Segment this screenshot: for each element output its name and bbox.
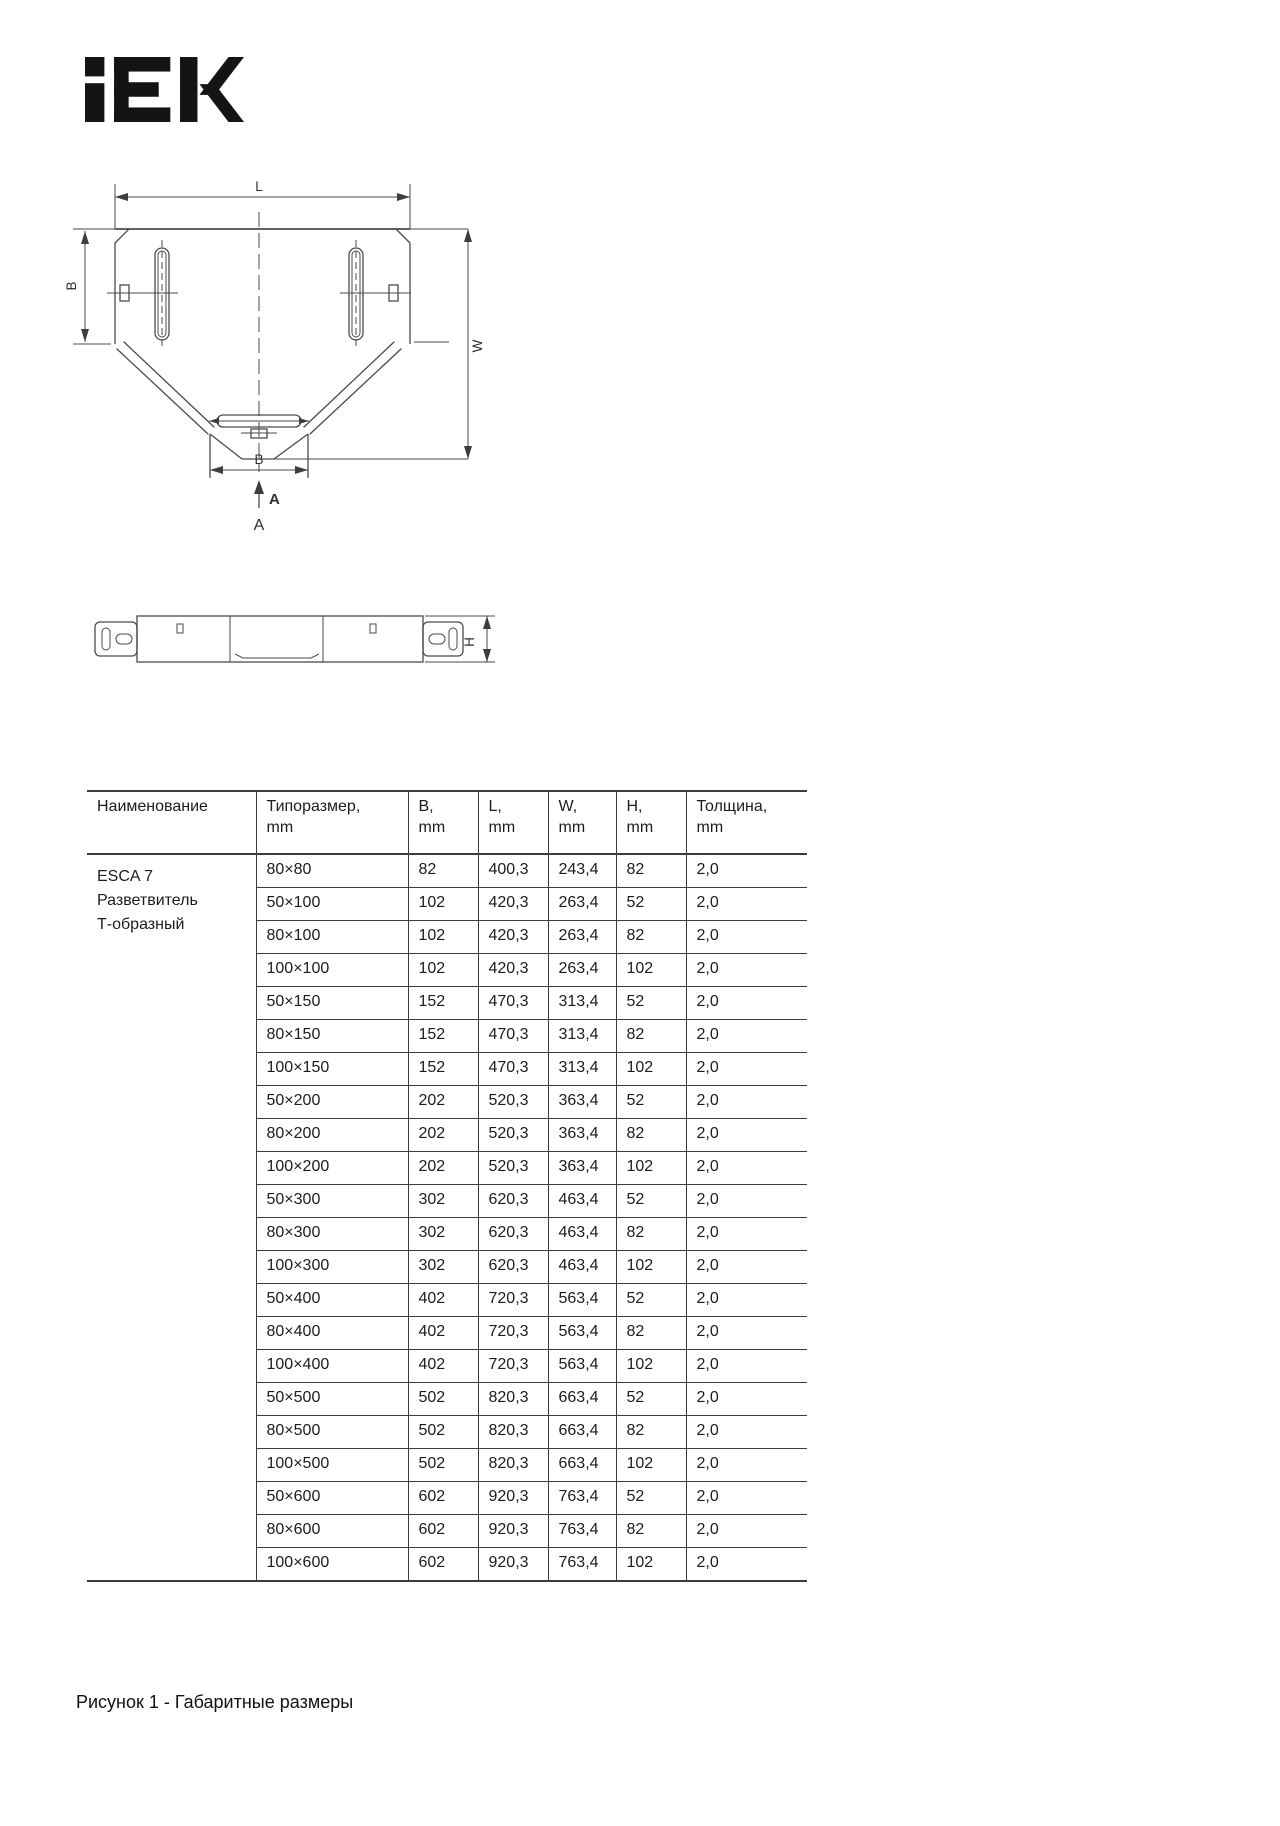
part-slope xyxy=(310,349,401,434)
table-cell: 2,0 xyxy=(686,1218,807,1251)
table-header: Наименование Типоразмер, mm B, mm L, mm … xyxy=(87,791,807,854)
header-typesize: Типоразмер, mm xyxy=(256,791,408,854)
side-body xyxy=(137,616,423,662)
part-bottom-chamfer xyxy=(210,434,242,459)
table-cell: 52 xyxy=(616,1185,686,1218)
table-cell: 50×150 xyxy=(256,987,408,1020)
dim-arrow xyxy=(483,616,491,629)
side-slot xyxy=(116,634,132,644)
table-cell: 2,0 xyxy=(686,1053,807,1086)
table-cell: 763,4 xyxy=(548,1482,616,1515)
table-cell: 563,4 xyxy=(548,1317,616,1350)
table-cell: 2,0 xyxy=(686,1383,807,1416)
part-bottom-chamfer xyxy=(274,434,308,459)
table-cell: 2,0 xyxy=(686,1350,807,1383)
table-cell: 100×500 xyxy=(256,1449,408,1482)
table-cell: 2,0 xyxy=(686,1119,807,1152)
table-cell: 563,4 xyxy=(548,1284,616,1317)
table-cell: 400,3 xyxy=(478,854,548,888)
table-cell: 663,4 xyxy=(548,1416,616,1449)
table-cell: 102 xyxy=(408,954,478,987)
table-cell: 102 xyxy=(616,954,686,987)
table-cell: 202 xyxy=(408,1119,478,1152)
part-slope xyxy=(124,342,214,427)
table-cell: 80×300 xyxy=(256,1218,408,1251)
dim-label-W: W xyxy=(470,339,485,352)
table-cell: 82 xyxy=(408,854,478,888)
header-l: L, mm xyxy=(478,791,548,854)
table-cell: 52 xyxy=(616,1284,686,1317)
table-cell: 2,0 xyxy=(686,1152,807,1185)
part-slope xyxy=(304,342,394,427)
table-cell: 52 xyxy=(616,987,686,1020)
table-cell: 263,4 xyxy=(548,921,616,954)
table-cell: 620,3 xyxy=(478,1218,548,1251)
table-cell: 102 xyxy=(616,1251,686,1284)
side-slot xyxy=(449,628,457,650)
table-cell: 50×400 xyxy=(256,1284,408,1317)
table-cell: 100×150 xyxy=(256,1053,408,1086)
table-cell: 502 xyxy=(408,1416,478,1449)
table-cell: 470,3 xyxy=(478,1020,548,1053)
table-cell: 82 xyxy=(616,921,686,954)
table-cell: 80×600 xyxy=(256,1515,408,1548)
header-name: Наименование xyxy=(87,791,256,854)
table-cell: 152 xyxy=(408,1020,478,1053)
table-cell: 263,4 xyxy=(548,888,616,921)
table-cell: 243,4 xyxy=(548,854,616,888)
size-table-body: ESCA 7 Разветвитель Т-образный80×8082400… xyxy=(87,854,807,1581)
table-row: ESCA 7 Разветвитель Т-образный80×8082400… xyxy=(87,854,807,888)
table-cell: 2,0 xyxy=(686,888,807,921)
table-cell: 82 xyxy=(616,1218,686,1251)
table-cell: 2,0 xyxy=(686,1284,807,1317)
table-cell: 720,3 xyxy=(478,1350,548,1383)
dim-arrow xyxy=(295,466,308,474)
section-title: A xyxy=(254,517,265,534)
table-cell: 100×300 xyxy=(256,1251,408,1284)
table-cell: 502 xyxy=(408,1449,478,1482)
dim-arrow xyxy=(81,329,89,342)
table-cell: 720,3 xyxy=(478,1317,548,1350)
table-cell: 50×200 xyxy=(256,1086,408,1119)
table-cell: 82 xyxy=(616,1119,686,1152)
side-hole xyxy=(177,624,183,633)
table-cell: 52 xyxy=(616,888,686,921)
table-cell: 102 xyxy=(616,1548,686,1582)
table-cell: 663,4 xyxy=(548,1449,616,1482)
table-cell: 80×200 xyxy=(256,1119,408,1152)
table-cell: 463,4 xyxy=(548,1185,616,1218)
table-cell: 80×500 xyxy=(256,1416,408,1449)
section-arrow-head xyxy=(254,480,264,494)
table-cell: 2,0 xyxy=(686,1020,807,1053)
table-cell: 202 xyxy=(408,1152,478,1185)
table-cell: 563,4 xyxy=(548,1350,616,1383)
table-cell: 313,4 xyxy=(548,987,616,1020)
table-cell: 313,4 xyxy=(548,1053,616,1086)
dim-arrow xyxy=(210,466,223,474)
table-cell: 302 xyxy=(408,1251,478,1284)
table-cell: 470,3 xyxy=(478,1053,548,1086)
table-cell: 2,0 xyxy=(686,1086,807,1119)
table-cell: 152 xyxy=(408,987,478,1020)
table-cell: 152 xyxy=(408,1053,478,1086)
table-cell: 102 xyxy=(616,1350,686,1383)
slot-hole xyxy=(349,248,363,340)
table-cell: 602 xyxy=(408,1482,478,1515)
dim-arrow xyxy=(397,193,410,201)
table-cell: 82 xyxy=(616,1416,686,1449)
table-cell: 100×600 xyxy=(256,1548,408,1582)
table-cell: 520,3 xyxy=(478,1086,548,1119)
table-cell: 602 xyxy=(408,1515,478,1548)
dim-label-H: H xyxy=(462,637,477,647)
document-page: L B xyxy=(0,0,1280,1826)
table-cell: 363,4 xyxy=(548,1086,616,1119)
header-thickness: Толщина, mm xyxy=(686,791,807,854)
table-cell: 80×100 xyxy=(256,921,408,954)
table-cell: 102 xyxy=(616,1152,686,1185)
header-b: B, mm xyxy=(408,791,478,854)
table-cell: 202 xyxy=(408,1086,478,1119)
table-cell: 2,0 xyxy=(686,1251,807,1284)
table-cell: 402 xyxy=(408,1317,478,1350)
part-slope xyxy=(117,349,208,434)
table-cell: 502 xyxy=(408,1383,478,1416)
section-arrow-label: A xyxy=(269,491,280,508)
table-cell: 820,3 xyxy=(478,1449,548,1482)
side-hole xyxy=(370,624,376,633)
table-cell: 820,3 xyxy=(478,1416,548,1449)
table-cell: 313,4 xyxy=(548,1020,616,1053)
table-cell: 620,3 xyxy=(478,1251,548,1284)
table-cell: 100×100 xyxy=(256,954,408,987)
table-cell: 470,3 xyxy=(478,987,548,1020)
table-cell: 263,4 xyxy=(548,954,616,987)
table-cell: 820,3 xyxy=(478,1383,548,1416)
table-cell: 402 xyxy=(408,1350,478,1383)
table-cell: 100×400 xyxy=(256,1350,408,1383)
table-cell: 363,4 xyxy=(548,1152,616,1185)
table-cell: 420,3 xyxy=(478,921,548,954)
product-name-cell: ESCA 7 Разветвитель Т-образный xyxy=(87,854,256,1581)
table-cell: 102 xyxy=(616,1053,686,1086)
table-cell: 620,3 xyxy=(478,1185,548,1218)
dim-arrow xyxy=(483,649,491,662)
table-cell: 2,0 xyxy=(686,1185,807,1218)
table-cell: 2,0 xyxy=(686,987,807,1020)
table-cell: 763,4 xyxy=(548,1515,616,1548)
table-cell: 663,4 xyxy=(548,1383,616,1416)
table-cell: 2,0 xyxy=(686,1548,807,1582)
table-cell: 2,0 xyxy=(686,954,807,987)
table-cell: 720,3 xyxy=(478,1284,548,1317)
table-cell: 80×400 xyxy=(256,1317,408,1350)
logo-letters xyxy=(85,57,244,122)
table-cell: 82 xyxy=(616,1317,686,1350)
table-cell: 82 xyxy=(616,1020,686,1053)
table-cell: 2,0 xyxy=(686,1416,807,1449)
table-cell: 2,0 xyxy=(686,854,807,888)
table-cell: 2,0 xyxy=(686,1515,807,1548)
dimension-drawing: L B xyxy=(65,172,535,692)
side-slot xyxy=(102,628,110,650)
table-cell: 50×500 xyxy=(256,1383,408,1416)
header-h: H, mm xyxy=(616,791,686,854)
table-cell: 920,3 xyxy=(478,1482,548,1515)
table-cell: 463,4 xyxy=(548,1251,616,1284)
table-cell: 80×150 xyxy=(256,1020,408,1053)
table-cell: 2,0 xyxy=(686,921,807,954)
dim-label-B-left: B xyxy=(65,281,79,290)
table-cell: 102 xyxy=(616,1449,686,1482)
table-cell: 52 xyxy=(616,1383,686,1416)
slot-hole xyxy=(155,248,169,340)
table-cell: 52 xyxy=(616,1086,686,1119)
table-cell: 763,4 xyxy=(548,1548,616,1582)
table-cell: 920,3 xyxy=(478,1548,548,1582)
side-center-lip xyxy=(235,654,319,658)
table-cell: 302 xyxy=(408,1218,478,1251)
table-cell: 50×300 xyxy=(256,1185,408,1218)
table-cell: 52 xyxy=(616,1482,686,1515)
table-cell: 420,3 xyxy=(478,954,548,987)
dim-label-B-bottom: B xyxy=(254,452,263,467)
table-cell: 920,3 xyxy=(478,1515,548,1548)
table-cell: 520,3 xyxy=(478,1119,548,1152)
table-cell: 102 xyxy=(408,921,478,954)
table-cell: 100×200 xyxy=(256,1152,408,1185)
table-cell: 420,3 xyxy=(478,888,548,921)
table-cell: 2,0 xyxy=(686,1482,807,1515)
table-cell: 50×600 xyxy=(256,1482,408,1515)
dim-arrow xyxy=(464,446,472,459)
dim-arrow xyxy=(115,193,128,201)
table-cell: 363,4 xyxy=(548,1119,616,1152)
header-w: W, mm xyxy=(548,791,616,854)
table-cell: 102 xyxy=(408,888,478,921)
table-cell: 520,3 xyxy=(478,1152,548,1185)
table-cell: 302 xyxy=(408,1185,478,1218)
table-cell: 602 xyxy=(408,1548,478,1582)
dim-arrow xyxy=(81,231,89,244)
table-cell: 82 xyxy=(616,854,686,888)
table-cell: 2,0 xyxy=(686,1449,807,1482)
side-slot xyxy=(429,634,445,644)
table-cell: 2,0 xyxy=(686,1317,807,1350)
dimensions-table: Наименование Типоразмер, mm B, mm L, mm … xyxy=(87,790,807,1582)
table-cell: 463,4 xyxy=(548,1218,616,1251)
iek-logo xyxy=(85,56,245,123)
dim-arrow xyxy=(464,229,472,242)
part-chamfer xyxy=(115,229,129,243)
table-cell: 402 xyxy=(408,1284,478,1317)
table-cell: 50×100 xyxy=(256,888,408,921)
part-chamfer xyxy=(396,229,410,243)
table-cell: 82 xyxy=(616,1515,686,1548)
dim-label-L: L xyxy=(255,179,263,194)
table-cell: 80×80 xyxy=(256,854,408,888)
figure-caption: Рисунок 1 - Габаритные размеры xyxy=(76,1692,353,1713)
